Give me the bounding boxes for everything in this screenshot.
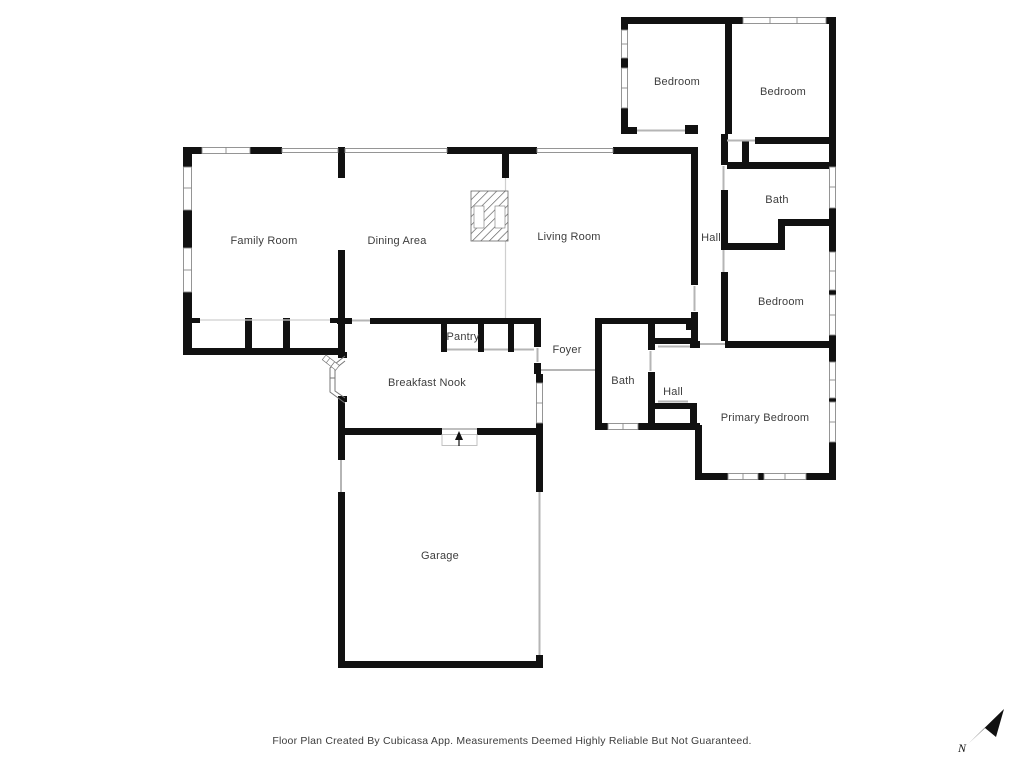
room-label-family-room: Family Room bbox=[231, 235, 298, 247]
walls bbox=[183, 17, 836, 668]
room-label-breakfast-nook: Breakfast Nook bbox=[388, 377, 466, 389]
room-label-bedroom-3: Bedroom bbox=[758, 296, 804, 308]
room-label-pantry: Pantry bbox=[447, 331, 480, 343]
room-label-dining-area: Dining Area bbox=[367, 235, 427, 247]
room-label-hall-lower: Hall bbox=[663, 386, 683, 398]
garage-entry-step bbox=[442, 428, 477, 446]
floor-plan: Bedroom Bedroom Bath Hall Bedroom Family… bbox=[0, 0, 1024, 768]
room-label-living-room: Living Room bbox=[537, 231, 600, 243]
room-label-bath-upper: Bath bbox=[765, 194, 788, 206]
compass: N bbox=[957, 709, 1004, 755]
room-label-bedroom-1: Bedroom bbox=[654, 76, 700, 88]
room-label-bedroom-2: Bedroom bbox=[760, 86, 806, 98]
room-label-bath-lower: Bath bbox=[611, 375, 634, 387]
fireplace bbox=[471, 191, 508, 241]
floor-plan-page: Bedroom Bedroom Bath Hall Bedroom Family… bbox=[0, 0, 1024, 768]
room-divider-lines bbox=[200, 178, 506, 320]
room-label-foyer: Foyer bbox=[552, 344, 581, 356]
room-label-primary-bedroom: Primary Bedroom bbox=[721, 412, 810, 424]
room-label-garage: Garage bbox=[421, 550, 459, 562]
footer-disclaimer: Floor Plan Created By Cubicasa App. Meas… bbox=[0, 735, 1024, 747]
room-label-hall-upper: Hall bbox=[701, 232, 721, 244]
